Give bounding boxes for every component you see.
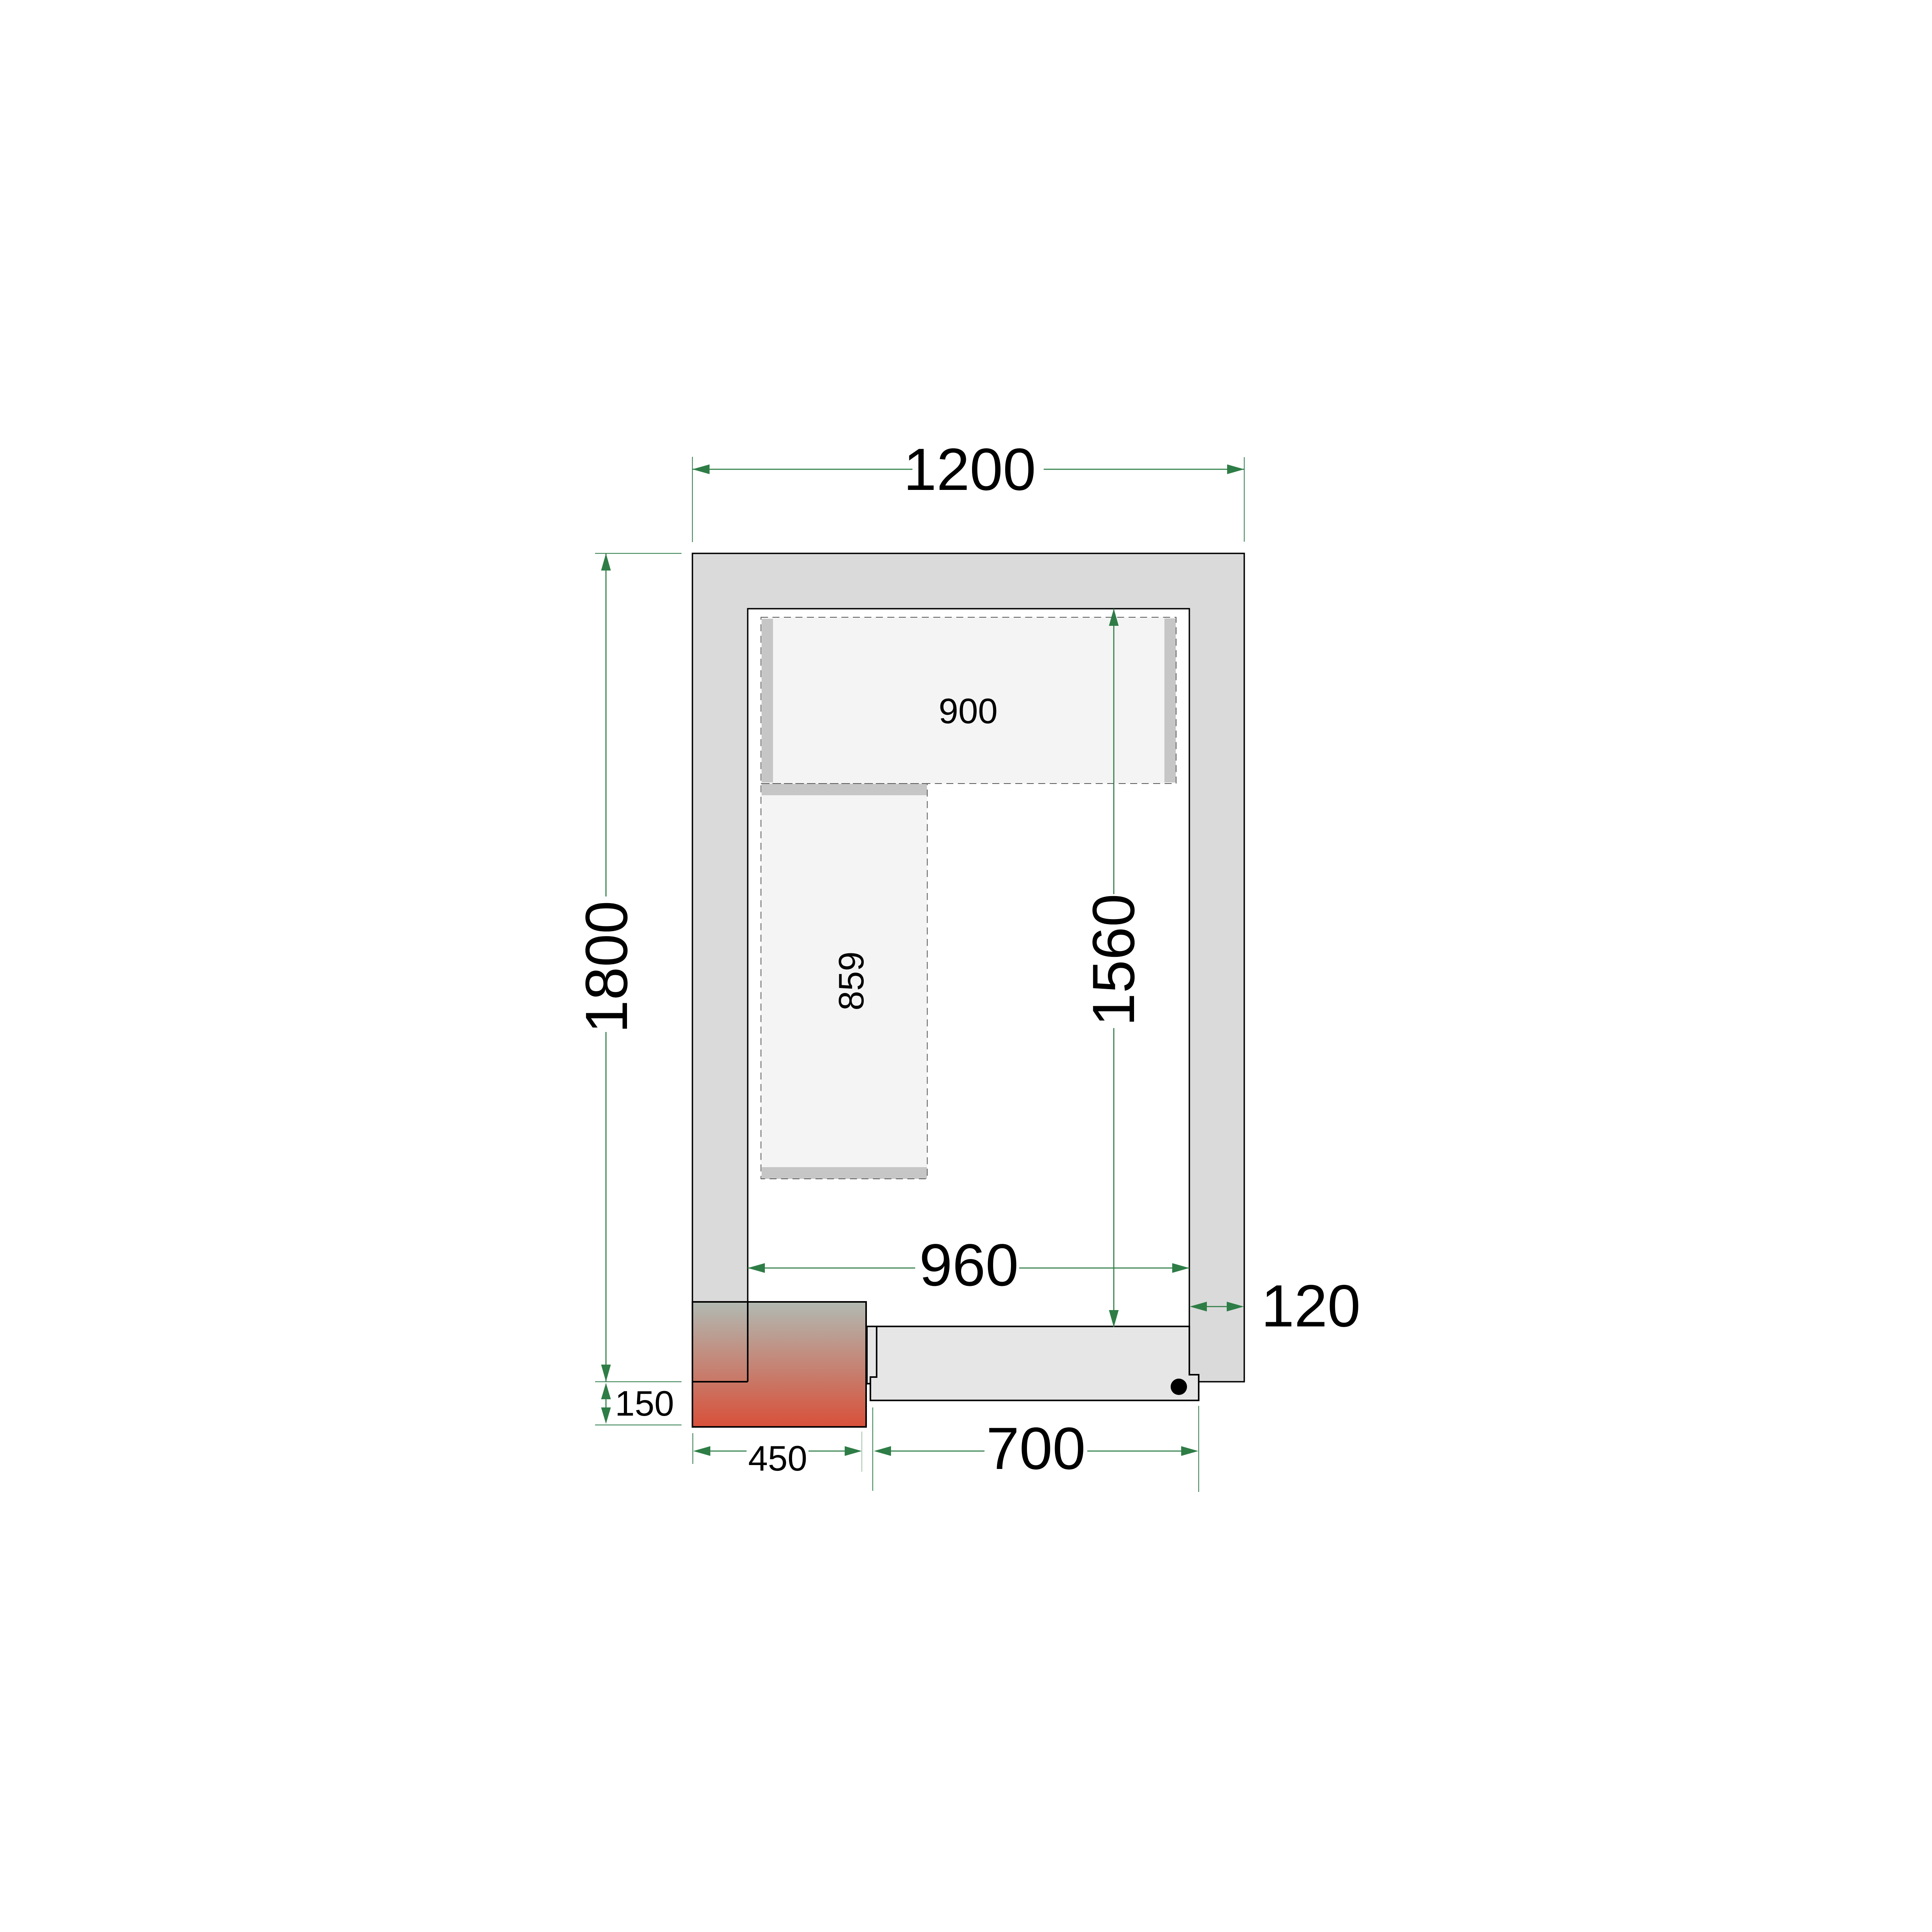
svg-text:859: 859 [832, 951, 871, 1011]
svg-text:960: 960 [919, 1232, 1018, 1298]
svg-text:150: 150 [615, 1384, 674, 1423]
svg-text:1560: 1560 [1080, 894, 1147, 1026]
svg-text:1200: 1200 [903, 436, 1036, 503]
svg-text:450: 450 [748, 1439, 807, 1478]
svg-text:120: 120 [1261, 1273, 1360, 1339]
svg-text:900: 900 [939, 692, 998, 731]
svg-text:700: 700 [986, 1415, 1085, 1482]
svg-text:1800: 1800 [573, 901, 640, 1033]
